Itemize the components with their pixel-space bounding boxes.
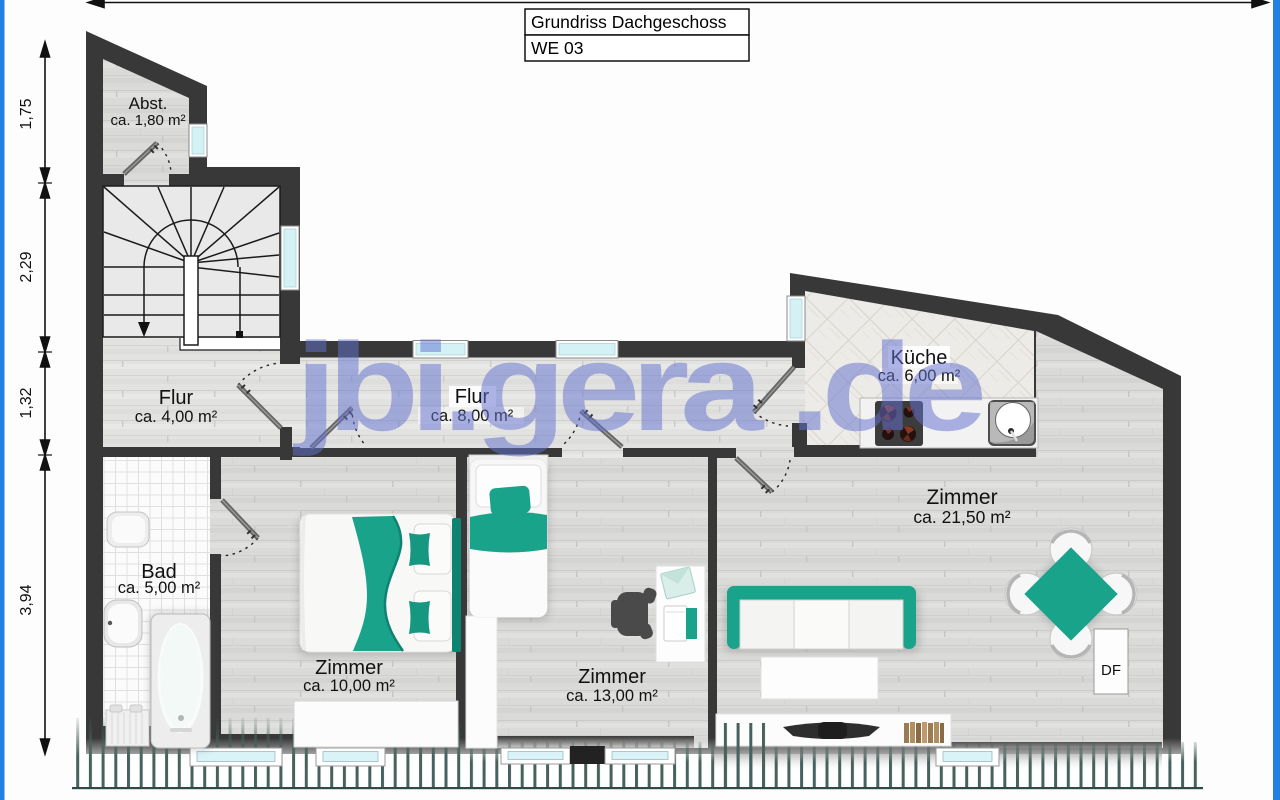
- svg-text:Abst.: Abst.: [129, 94, 168, 113]
- svg-text:Zimmer: Zimmer: [926, 486, 997, 509]
- svg-text:ca. 4,00 m²: ca. 4,00 m²: [135, 408, 218, 426]
- svg-text:3,94: 3,94: [18, 584, 35, 615]
- svg-text:ca. 10,00 m²: ca. 10,00 m²: [303, 677, 395, 695]
- svg-text:ca. 1,80 m²: ca. 1,80 m²: [110, 112, 185, 129]
- svg-text:jbi.gera.de: jbi.gera.de: [292, 318, 983, 457]
- svg-text:2,29: 2,29: [18, 251, 35, 282]
- svg-text:Zimmer: Zimmer: [578, 666, 646, 688]
- svg-text:Grundriss Dachgeschoss: Grundriss Dachgeschoss: [531, 12, 727, 32]
- svg-text:WE 03: WE 03: [531, 38, 584, 58]
- svg-text:Flur: Flur: [159, 387, 194, 409]
- svg-text:Zimmer: Zimmer: [315, 657, 383, 679]
- svg-text:DF: DF: [1101, 662, 1121, 679]
- svg-text:1,75: 1,75: [18, 98, 35, 129]
- svg-text:ca. 21,50 m²: ca. 21,50 m²: [913, 507, 1010, 527]
- svg-text:1,32: 1,32: [18, 387, 35, 418]
- svg-text:ca. 5,00 m²: ca. 5,00 m²: [118, 579, 201, 597]
- svg-text:ca. 13,00 m²: ca. 13,00 m²: [566, 687, 658, 705]
